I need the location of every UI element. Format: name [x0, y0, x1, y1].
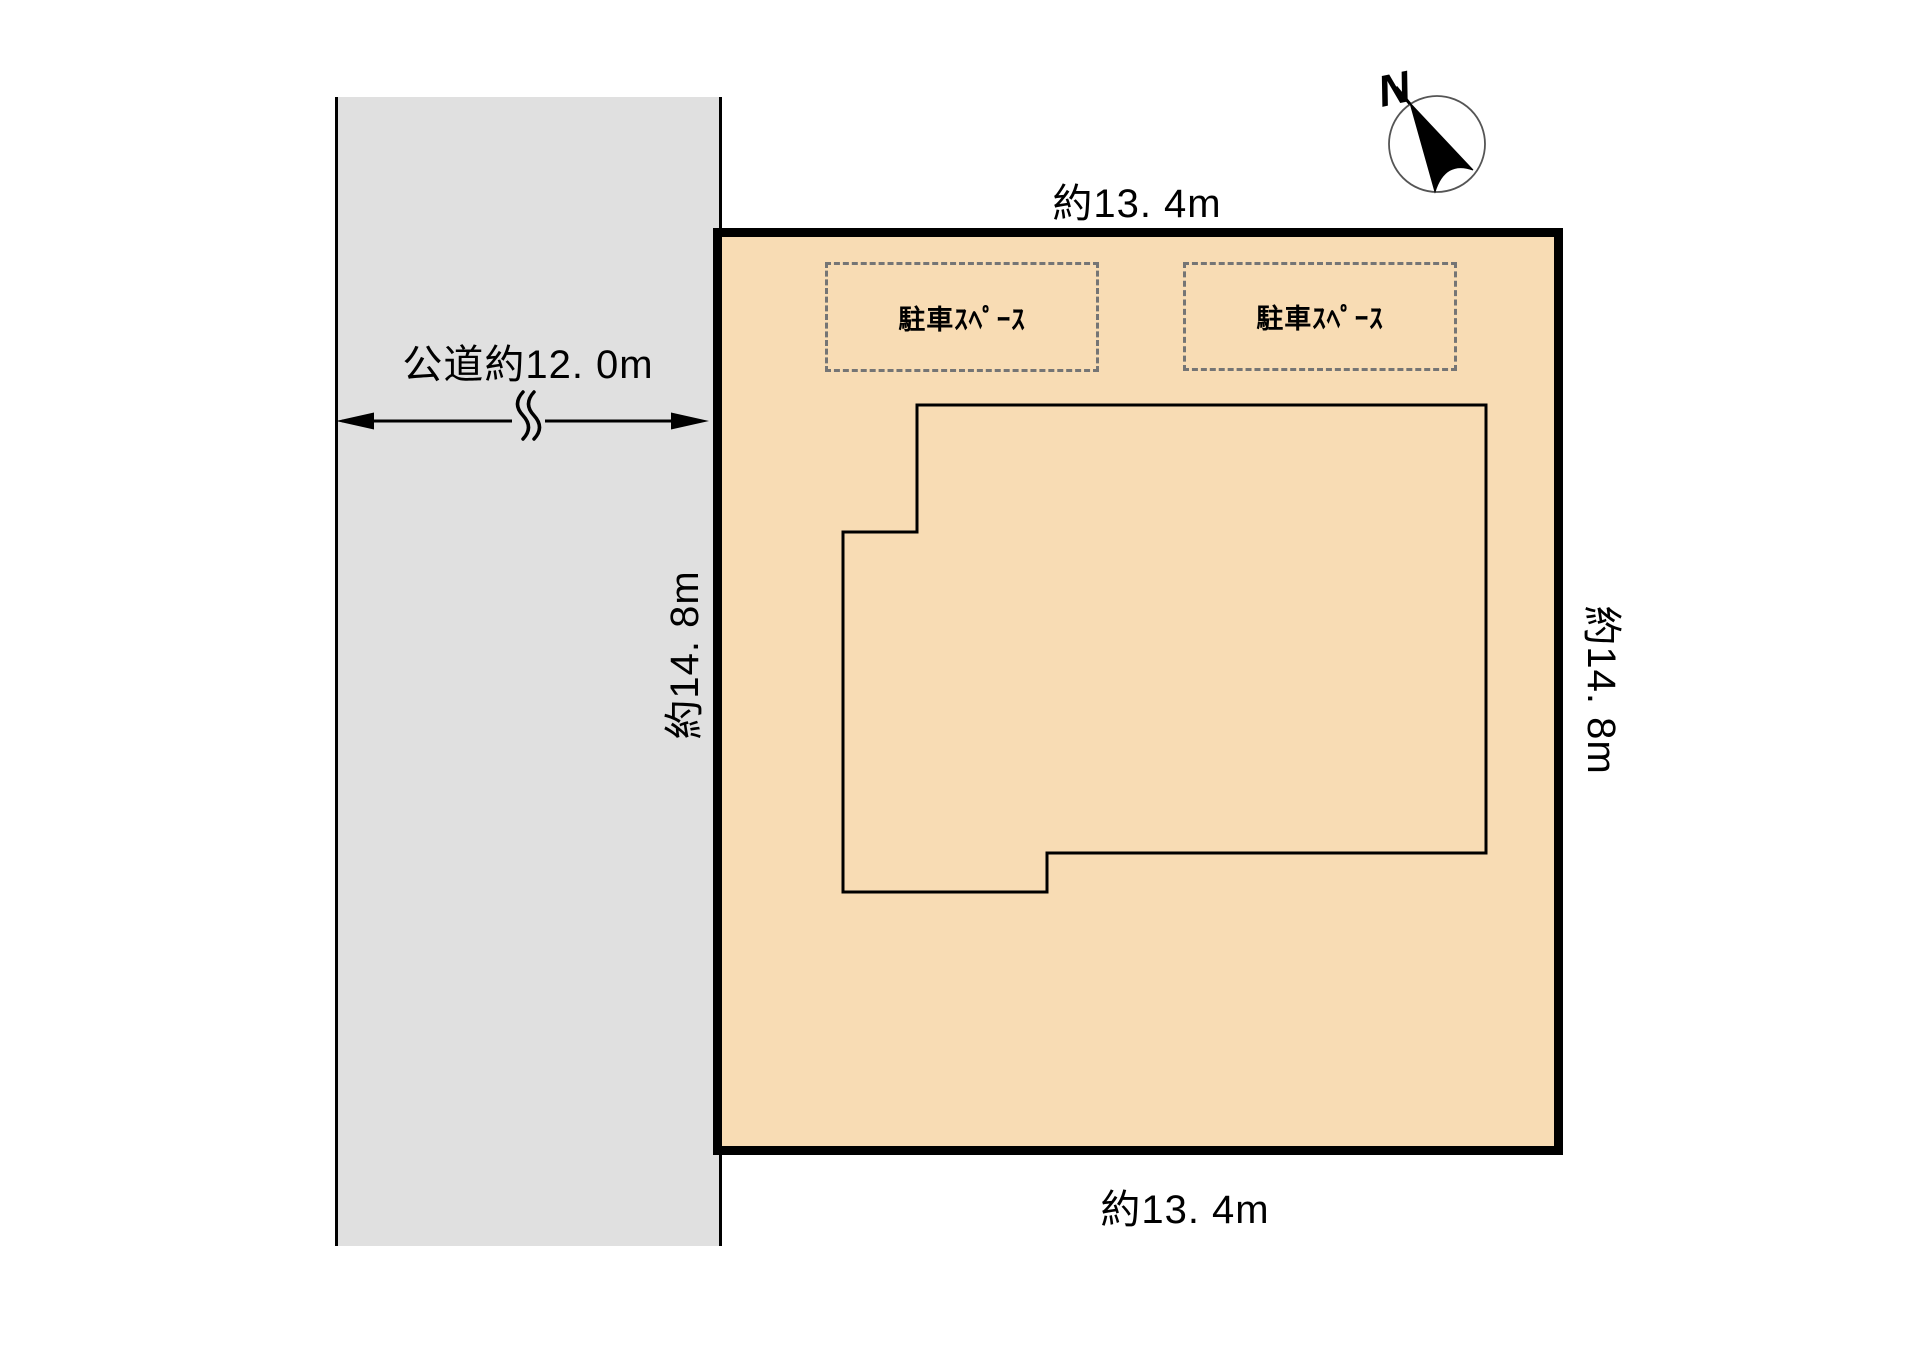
- compass: N: [1373, 62, 1485, 192]
- north-needle-icon: [1410, 103, 1473, 192]
- site-plan-diagram: 公道約12. 0m 駐車ｽﾍﾟｰｽ 駐車ｽﾍﾟｰｽ N: [0, 0, 1920, 1357]
- road-width-label: 公道約12. 0m: [378, 332, 678, 390]
- compass-north-label: N: [1373, 62, 1415, 117]
- needle-tail-icon: [1396, 87, 1410, 104]
- parking-space-2: 駐車ｽﾍﾟｰｽ: [1183, 262, 1457, 371]
- dimension-top-label: 約13. 4m: [1017, 171, 1257, 229]
- parking-space-1: 駐車ｽﾍﾟｰｽ: [825, 262, 1099, 372]
- dimension-left-label: 約14. 8m: [652, 570, 710, 739]
- dimension-right-label: 約14. 8m: [1576, 605, 1634, 774]
- compass-ring-icon: [1389, 96, 1485, 192]
- parking-space-1-label: 駐車ｽﾍﾟｰｽ: [898, 298, 1026, 337]
- parking-space-2-label: 駐車ｽﾍﾟｰｽ: [1256, 297, 1384, 336]
- dimension-bottom-label: 約13. 4m: [1065, 1177, 1305, 1235]
